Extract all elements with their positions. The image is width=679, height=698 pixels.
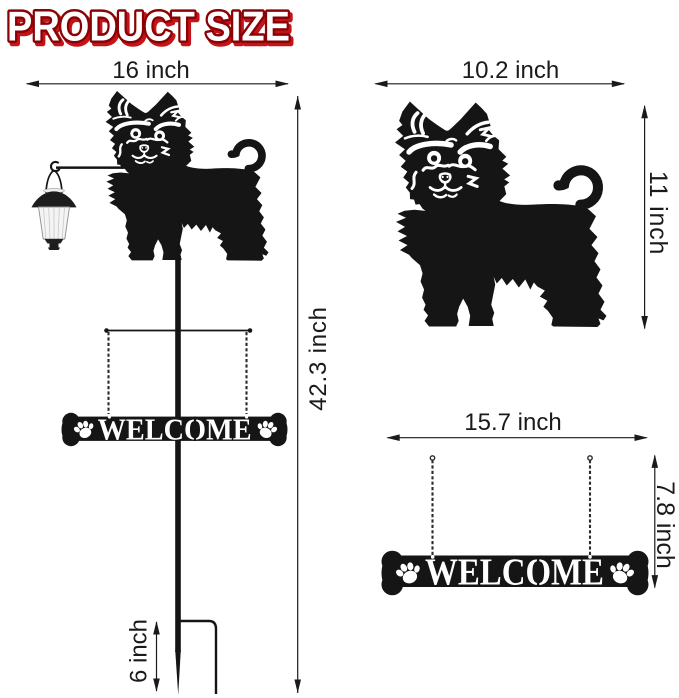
svg-text:16 inch: 16 inch xyxy=(112,57,189,84)
svg-text:WELCOME: WELCOME xyxy=(98,412,252,447)
svg-text:10.2 inch: 10.2 inch xyxy=(462,57,559,84)
svg-text:11 inch: 11 inch xyxy=(644,171,672,255)
svg-text:42.3 inch: 42.3 inch xyxy=(305,306,332,411)
svg-text:7.8 inch: 7.8 inch xyxy=(651,481,679,569)
svg-text:WELCOME: WELCOME xyxy=(425,552,604,594)
svg-text:15.7 inch: 15.7 inch xyxy=(464,409,561,436)
svg-text:6 inch: 6 inch xyxy=(126,619,153,683)
svg-text:PRODUCT SIZE: PRODUCT SIZE xyxy=(7,4,290,50)
